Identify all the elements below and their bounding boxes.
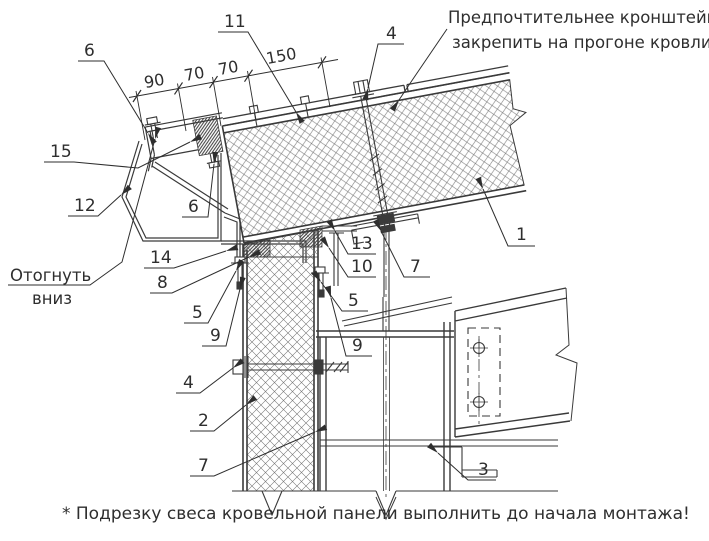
roof-panel-core [224,78,539,237]
construction-detail-drawing: Предпочтительнее кронштейн закрепить на … [0,0,709,541]
callout-4-top: 4 [386,26,397,44]
dim-70b: 70 [217,57,240,79]
note-bracket-line2: закрепить на прогоне кровли [452,33,709,52]
dim-70a: 70 [183,63,206,85]
callout-10: 10 [351,259,373,277]
callout-13: 13 [351,236,373,254]
callout-9-left: 9 [210,328,221,346]
column-cap [316,331,454,337]
footnote: * Подрезку свеса кровельной панели выпол… [62,504,690,524]
callout-3: 3 [478,462,489,480]
callout-5-right: 5 [348,293,359,311]
girt [320,440,558,446]
callout-15: 15 [50,144,72,162]
dim-90: 90 [143,70,166,92]
purlin-group [455,288,577,437]
wall-panel-core [247,257,314,491]
callout-7-right: 7 [410,259,421,277]
callout-2: 2 [198,413,209,431]
note-bend-line2: вниз [32,289,72,308]
callout-1: 1 [516,227,527,245]
callout-7-bottom: 7 [198,458,209,476]
gutter-flashing-12 [122,141,221,241]
callout-9-right: 9 [352,338,363,356]
note-bracket-line1: Предпочтительнее кронштейн [448,8,709,27]
roof-panel-group [139,52,539,278]
note-bend-line1: Отогнуть [10,266,91,285]
callout-11: 11 [224,14,246,32]
callout-6-mid: 6 [188,199,199,217]
seal-right [300,226,322,247]
callout-14: 14 [150,250,172,268]
callout-8: 8 [157,275,168,293]
wall-panel-group [231,226,348,491]
callout-4-bottom: 4 [183,375,194,393]
callout-5-left: 5 [192,305,203,323]
callout-12: 12 [74,198,96,216]
callout-6-top: 6 [84,43,95,61]
